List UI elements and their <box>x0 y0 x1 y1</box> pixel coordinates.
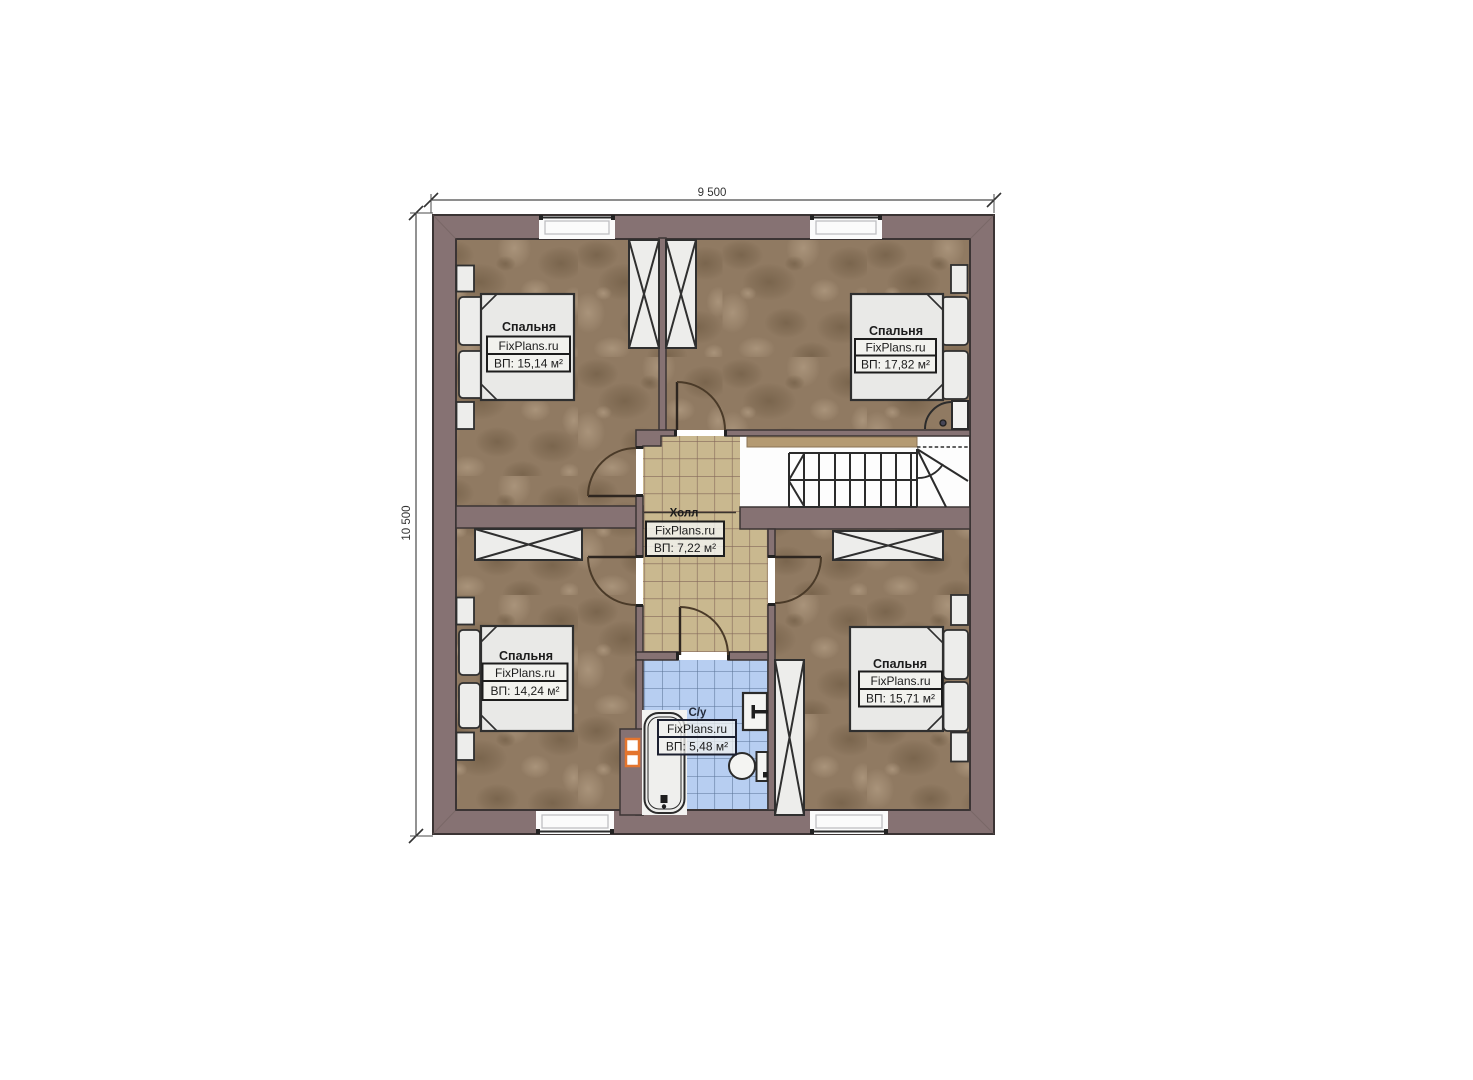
svg-text:Спальня: Спальня <box>499 649 553 663</box>
svg-text:ВП: 15,14 м²: ВП: 15,14 м² <box>494 357 563 371</box>
svg-text:Холл: Холл <box>670 508 699 520</box>
svg-text:ВП: 15,71 м²: ВП: 15,71 м² <box>866 692 935 706</box>
svg-text:FixPlans.ru: FixPlans.ru <box>870 674 930 688</box>
svg-text:ВП: 14,24 м²: ВП: 14,24 м² <box>491 684 560 698</box>
svg-text:Спальня: Спальня <box>873 657 927 671</box>
svg-text:Спальня: Спальня <box>502 320 556 334</box>
svg-text:FixPlans.ru: FixPlans.ru <box>495 666 555 680</box>
svg-text:ВП: 7,22 м²: ВП: 7,22 м² <box>654 541 716 555</box>
svg-text:9 500: 9 500 <box>698 187 727 199</box>
svg-text:FixPlans.ru: FixPlans.ru <box>667 722 727 736</box>
svg-text:ВП: 17,82 м²: ВП: 17,82 м² <box>861 358 930 372</box>
svg-text:Спальня: Спальня <box>869 324 923 338</box>
svg-text:FixPlans.ru: FixPlans.ru <box>655 524 715 538</box>
svg-text:FixPlans.ru: FixPlans.ru <box>498 339 558 353</box>
svg-text:ВП: 5,48 м²: ВП: 5,48 м² <box>666 740 728 754</box>
svg-text:С/у: С/у <box>689 707 708 719</box>
svg-text:FixPlans.ru: FixPlans.ru <box>865 341 925 355</box>
svg-text:10 500: 10 500 <box>401 505 413 540</box>
